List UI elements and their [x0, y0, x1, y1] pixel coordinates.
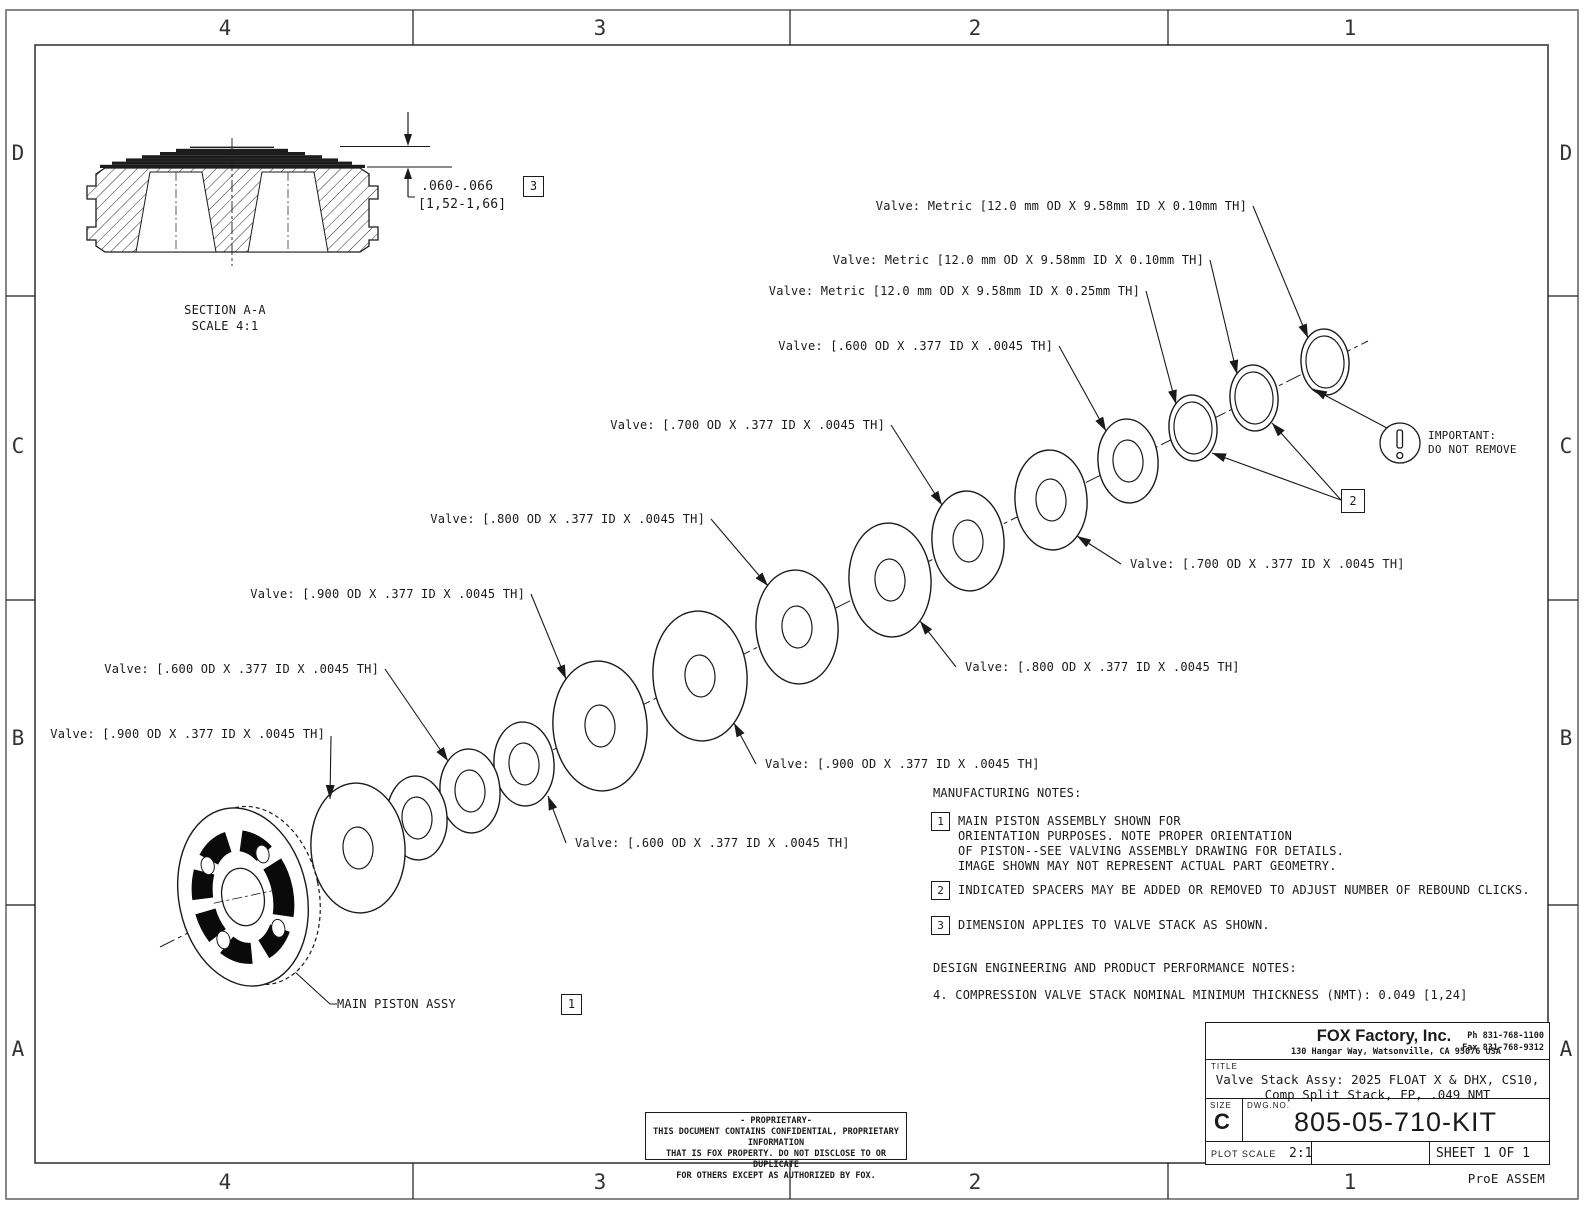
- callout-label: Valve: [.900 OD X .377 ID X .0045 TH]: [250, 587, 525, 601]
- plot-scale-label: PLOT SCALE: [1211, 1149, 1276, 1159]
- callout-label: Valve: [.800 OD X .377 ID X .0045 TH]: [965, 660, 1240, 674]
- leader-line: [531, 594, 566, 679]
- leader-line: [548, 796, 566, 843]
- note3-text: DIMENSION APPLIES TO VALVE STACK AS SHOW…: [958, 918, 1270, 933]
- valve-disc-v800: [752, 567, 842, 686]
- proprietary-notice: - PROPRIETARY- THIS DOCUMENT CONTAINS CO…: [645, 1112, 907, 1160]
- leader-line: [1313, 389, 1387, 428]
- leader-line: [1059, 346, 1106, 431]
- valve-disc-v700: [929, 489, 1008, 594]
- callout-label: Valve: [.600 OD X .377 ID X .0045 TH]: [575, 836, 850, 850]
- zone-col-4: 4: [210, 16, 240, 40]
- valve-disc-v800: [845, 520, 935, 639]
- important-line2: DO NOT REMOVE: [1428, 443, 1517, 457]
- valve-disc-sp: [1167, 393, 1219, 462]
- mfg-notes-header: MANUFACTURING NOTES:: [933, 786, 1082, 801]
- drawing-sheet: { "zones": { "cols": ["4","3","2","1"], …: [0, 0, 1584, 1224]
- leader-line: [330, 736, 331, 799]
- leader-line: [1077, 536, 1121, 564]
- dim-flag-3: 3: [523, 176, 544, 197]
- leader-line: [1212, 453, 1341, 500]
- valve-disc-v900: [649, 608, 752, 744]
- prop-line4: FOR OTHERS EXCEPT AS AUTHORIZED BY FOX.: [646, 1171, 906, 1182]
- note1-flag: 1: [931, 812, 950, 831]
- zone-col-4: 4: [210, 1170, 240, 1194]
- zone-row-C: C: [1551, 434, 1581, 458]
- zone-row-D: D: [1551, 141, 1581, 165]
- zone-row-A: A: [1551, 1037, 1581, 1061]
- section-valve-stack: [100, 147, 365, 168]
- drawing-title-line2: Comp Split Stack, FP, .049 NMT: [1206, 1087, 1549, 1102]
- valve-disc-v900: [549, 658, 652, 794]
- design-notes-header: DESIGN ENGINEERING AND PRODUCT PERFORMAN…: [933, 961, 1297, 976]
- prop-line1: - PROPRIETARY-: [646, 1116, 906, 1127]
- zone-row-B: B: [3, 726, 33, 750]
- company-phone: Ph 831-768-1100: [1467, 1031, 1544, 1041]
- prop-line3: THAT IS FOX PROPERTY. DO NOT DISCLOSE TO…: [646, 1149, 906, 1171]
- leader-line: [1272, 423, 1341, 500]
- callout-label: Valve: Metric [12.0 mm OD X 9.58mm ID X …: [833, 253, 1204, 267]
- leader-line: [711, 519, 768, 586]
- zone-row-A: A: [3, 1037, 33, 1061]
- drawing-title-line1: Valve Stack Assy: 2025 FLOAT X & DHX, CS…: [1206, 1072, 1549, 1087]
- title-label: TITLE: [1211, 1062, 1238, 1071]
- leader-line: [734, 723, 756, 764]
- leader-line: [1210, 260, 1237, 374]
- callout-label: Valve: [.900 OD X .377 ID X .0045 TH]: [50, 727, 325, 741]
- zone-col-2: 2: [960, 1170, 990, 1194]
- valve-disc-sp: [1299, 327, 1351, 396]
- zone-col-3: 3: [585, 16, 615, 40]
- leader-line: [1253, 206, 1308, 338]
- company-fax: Fax 831-768-9312: [1462, 1043, 1544, 1053]
- valve-disc-v600: [491, 720, 557, 808]
- section-view: [87, 112, 452, 266]
- note3-flag: 3: [931, 916, 950, 935]
- title-block: FOX FOX Factory, Inc. 130 Hangar Way, Wa…: [1205, 1022, 1550, 1165]
- dim-value-mm: [1,52-1,66]: [418, 198, 506, 212]
- sheet-value: SHEET 1 OF 1: [1436, 1146, 1530, 1161]
- callout-label: Valve: Metric [12.0 mm OD X 9.58mm ID X …: [769, 284, 1140, 298]
- footer-proe-assem: ProE ASSEM: [1395, 1172, 1545, 1186]
- prop-line2: THIS DOCUMENT CONTAINS CONFIDENTIAL, PRO…: [646, 1127, 906, 1149]
- important-marker: [1380, 423, 1420, 463]
- note2-text: INDICATED SPACERS MAY BE ADDED OR REMOVE…: [958, 883, 1530, 898]
- callout-label: Valve: [.600 OD X .377 ID X .0045 TH]: [778, 339, 1053, 353]
- section-label: SECTION A-A: [160, 303, 290, 317]
- zone-col-2: 2: [960, 16, 990, 40]
- company-name: FOX Factory, Inc.: [1299, 1027, 1469, 1046]
- leader-line: [891, 425, 942, 505]
- callout-label: Valve: [.600 OD X .377 ID X .0045 TH]: [104, 662, 379, 676]
- valve-disc-sp: [1228, 363, 1280, 432]
- main-piston-assembly: [162, 793, 337, 999]
- note1-line2: ORIENTATION PURPOSES. NOTE PROPER ORIENT…: [958, 829, 1292, 844]
- plot-scale-value: 2:1: [1289, 1146, 1312, 1161]
- leader-line: [920, 621, 956, 667]
- leader-line: [1146, 291, 1176, 404]
- callout-label: Valve: [.900 OD X .377 ID X .0045 TH]: [765, 757, 1040, 771]
- spacer-flag-2: 2: [1341, 489, 1365, 513]
- important-line1: IMPORTANT:: [1428, 429, 1496, 443]
- note1-line4: IMAGE SHOWN MAY NOT REPRESENT ACTUAL PAR…: [958, 859, 1337, 874]
- size-value: C: [1214, 1109, 1230, 1135]
- leader-line: [385, 669, 448, 761]
- piston-flag-1: 1: [561, 994, 582, 1015]
- zone-col-1: 1: [1335, 1170, 1365, 1194]
- callout-label: Valve: [.800 OD X .377 ID X .0045 TH]: [430, 512, 705, 526]
- callout-label: Valve: [.700 OD X .377 ID X .0045 TH]: [610, 418, 885, 432]
- company-address: 130 Hangar Way, Watsonville, CA 95076 US…: [1291, 1047, 1481, 1057]
- main-piston-label: MAIN PISTON ASSY: [337, 997, 456, 1011]
- callout-label: Valve: Metric [12.0 mm OD X 9.58mm ID X …: [876, 199, 1247, 213]
- zone-row-B: B: [1551, 726, 1581, 750]
- dim-value-inch: .060-.066: [421, 180, 493, 194]
- zone-row-C: C: [3, 434, 33, 458]
- zone-col-1: 1: [1335, 16, 1365, 40]
- note1-line3: OF PISTON--SEE VALVING ASSEMBLY DRAWING …: [958, 844, 1344, 859]
- note1-line1: MAIN PISTON ASSEMBLY SHOWN FOR: [958, 814, 1181, 829]
- dwg-number: 805-05-710-KIT: [1242, 1107, 1549, 1138]
- zone-row-D: D: [3, 141, 33, 165]
- note4-text: 4. COMPRESSION VALVE STACK NOMINAL MINIM…: [933, 988, 1468, 1003]
- callout-label: Valve: [.700 OD X .377 ID X .0045 TH]: [1130, 557, 1405, 571]
- note2-flag: 2: [931, 881, 950, 900]
- zone-col-3: 3: [585, 1170, 615, 1194]
- section-scale-label: SCALE 4:1: [160, 319, 290, 333]
